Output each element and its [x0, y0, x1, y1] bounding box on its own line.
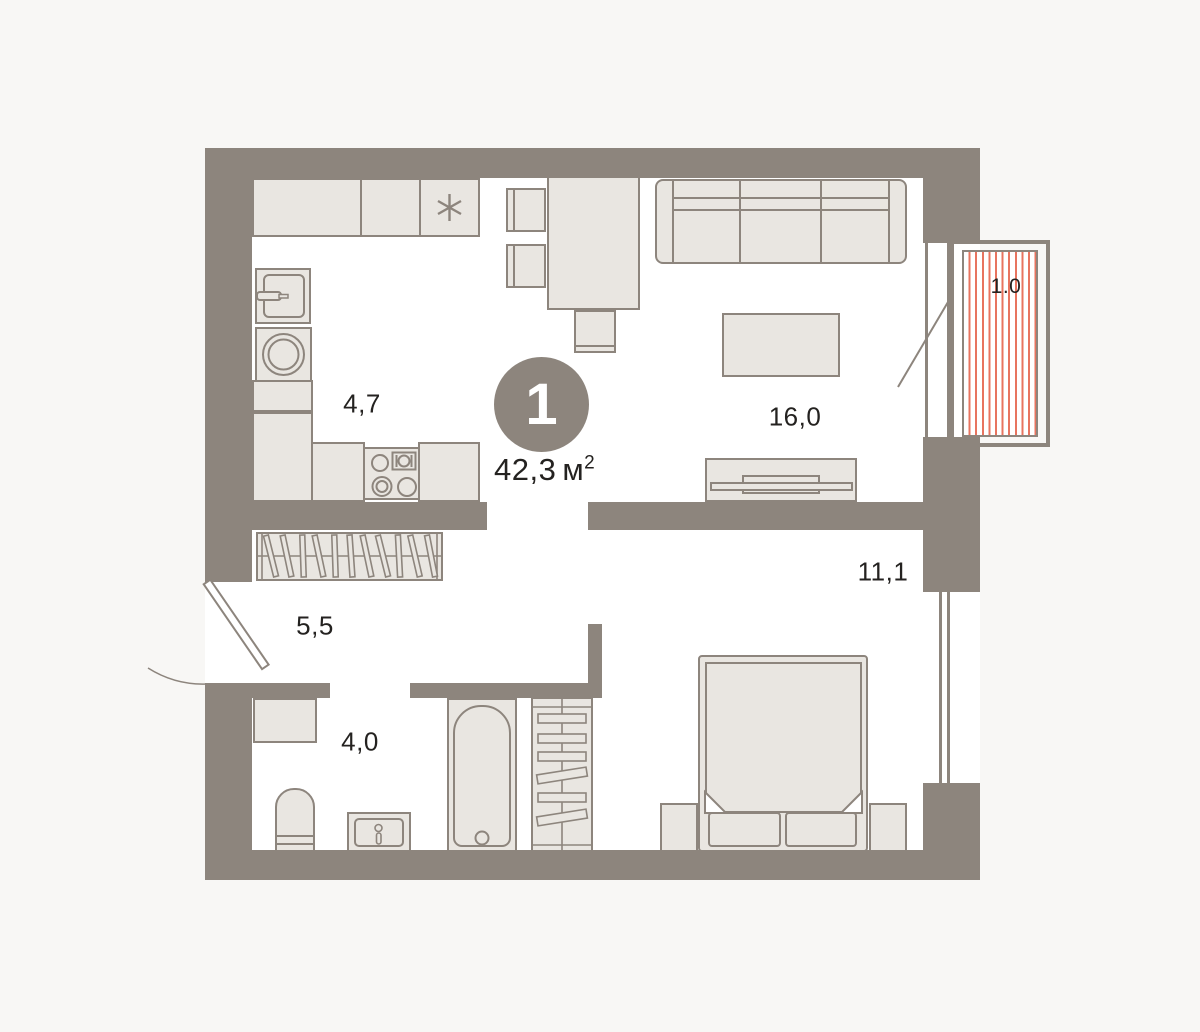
- hallway-area-label: 5,5: [296, 611, 334, 642]
- bedroom-window-line-outer: [947, 592, 950, 783]
- kitchen-counter-top-1: [252, 178, 362, 237]
- coffee-table: [722, 313, 840, 377]
- bathroom-area-label: 4,0: [341, 727, 379, 758]
- wall-living-bedroom-divider: [588, 502, 923, 530]
- bedroom-window-line-inner: [939, 592, 942, 783]
- nightstand-left: [660, 803, 698, 852]
- wall-right-upper: [923, 148, 980, 243]
- bedroom-area-label: 11,1: [858, 557, 909, 588]
- wall-bathroom-top-right: [410, 683, 602, 698]
- kitchen-area-label: 4,7: [343, 389, 381, 420]
- fridge: [419, 178, 480, 237]
- kitchen-counter-corner: [252, 412, 313, 502]
- chair-left-1: [506, 188, 546, 232]
- kitchen-counter-bottom-2: [418, 442, 480, 502]
- tv-panel: [710, 482, 853, 491]
- kitchen-counter-left-small: [252, 380, 313, 412]
- wall-right-middle: [923, 437, 980, 592]
- chair-left-2: [506, 244, 546, 288]
- living-room-area-label: 16,0: [769, 402, 822, 433]
- apartment-number: 1: [525, 376, 557, 434]
- floor-plan: 4,7 16,0 11,1 5,5 4,0 1.0 1 42,3м2: [0, 0, 1200, 1032]
- kitchen-counter-top-2: [360, 178, 421, 237]
- chair-bottom: [574, 310, 616, 353]
- bed-pillow-right: [785, 812, 857, 847]
- total-area-label: 42,3м2: [494, 452, 595, 488]
- wall-bottom: [205, 850, 980, 880]
- kitchen-counter-bottom-1: [311, 442, 365, 502]
- bed-pillow-left: [708, 812, 781, 847]
- bed-duvet: [705, 662, 862, 813]
- kitchen-sink-unit: [255, 268, 311, 324]
- wardrobe: [531, 697, 593, 852]
- dishwasher: [255, 327, 312, 382]
- balcony-area-label: 1.0: [991, 275, 1022, 299]
- entrance-door-arc: [148, 668, 207, 684]
- total-area-unit: м: [562, 452, 584, 487]
- wall-top: [205, 148, 980, 178]
- coat-rack: [256, 532, 443, 581]
- toilet: [275, 788, 315, 853]
- total-area-superscript: 2: [584, 453, 595, 474]
- total-area-value: 42,3: [494, 452, 556, 487]
- washing-machine: [253, 698, 317, 743]
- wall-kitchen-hall-divider: [205, 502, 487, 530]
- wall-right-lower: [923, 783, 980, 880]
- wall-bathroom-top-left: [205, 683, 330, 698]
- stove: [363, 447, 420, 500]
- sofa: [655, 179, 907, 264]
- bathtub-inner: [453, 705, 511, 847]
- balcony-window-line-outer: [947, 242, 950, 437]
- apartment-number-badge: 1: [494, 357, 589, 452]
- nightstand-right: [869, 803, 907, 852]
- bathroom-sink-basin: [354, 818, 404, 847]
- dining-table: [547, 176, 640, 310]
- balcony-window-line-inner: [925, 242, 928, 437]
